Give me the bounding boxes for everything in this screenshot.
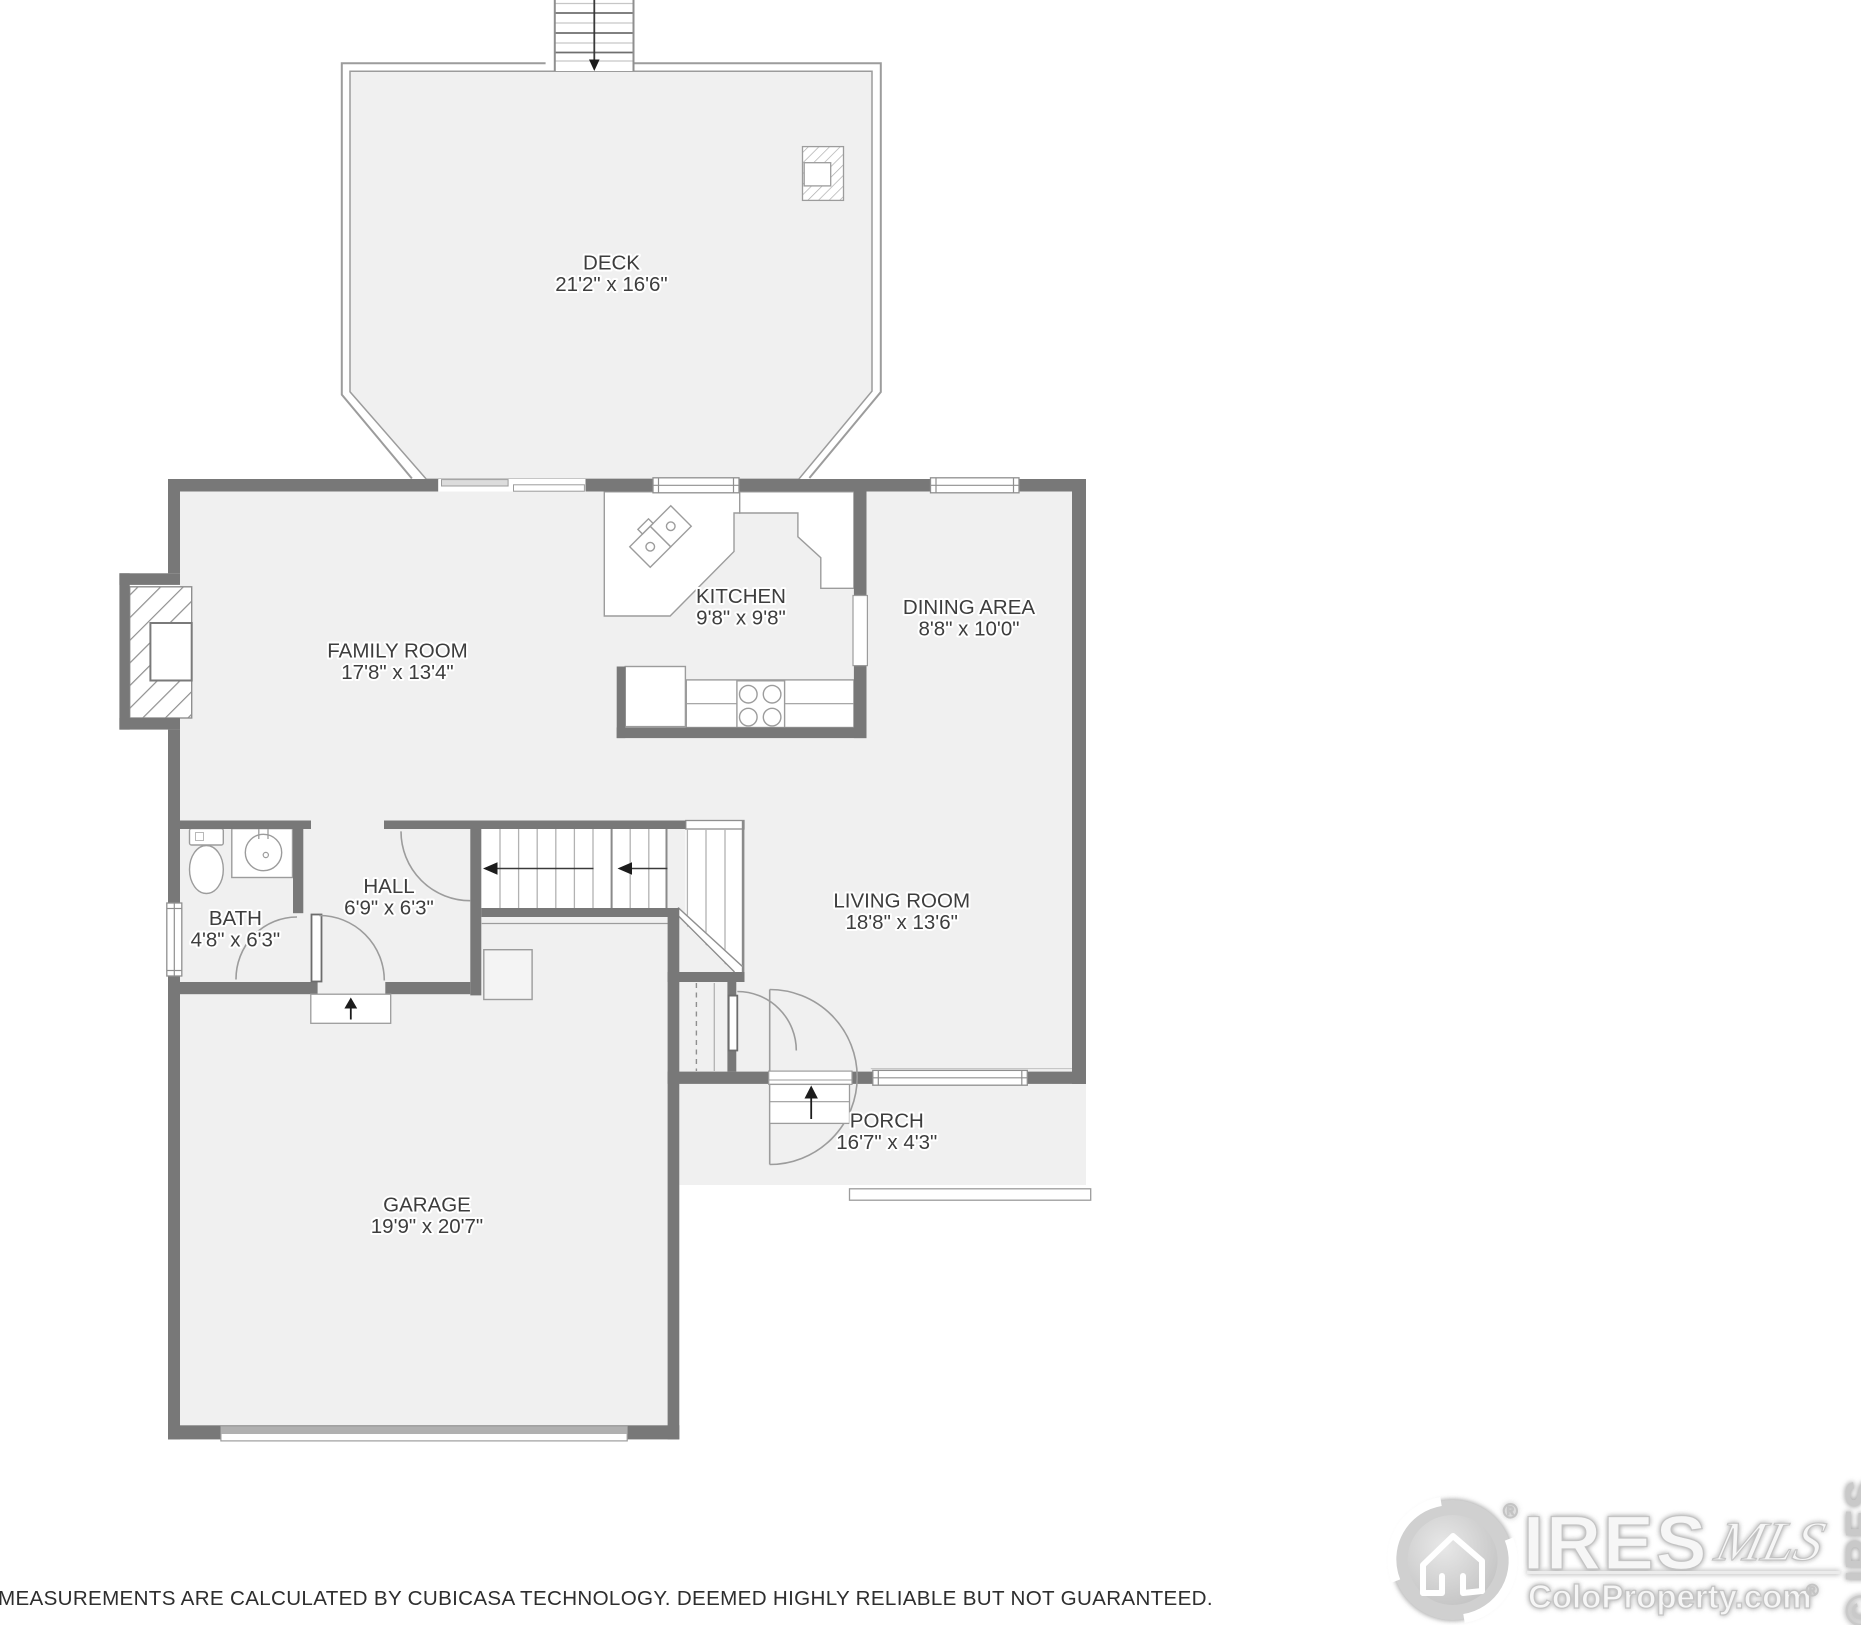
svg-text:18'8" x 13'6": 18'8" x 13'6" [845, 911, 957, 934]
svg-text:BATH: BATH [209, 907, 262, 930]
svg-text:DECK: DECK [583, 252, 640, 275]
svg-text:®: ® [1806, 1581, 1819, 1600]
svg-text:HALL: HALL [363, 875, 414, 898]
svg-text:FAMILY ROOM: FAMILY ROOM [327, 640, 468, 663]
svg-text:KITCHEN: KITCHEN [696, 585, 786, 608]
svg-text:21'2" x 16'6": 21'2" x 16'6" [555, 273, 667, 296]
svg-text:17'8" x 13'4": 17'8" x 13'4" [341, 661, 453, 684]
svg-text:DINING AREA: DINING AREA [903, 596, 1035, 619]
svg-text:8'8" x 10'0": 8'8" x 10'0" [918, 618, 1019, 641]
svg-text:9'8" x 9'8": 9'8" x 9'8" [696, 607, 786, 630]
svg-text:LIVING ROOM: LIVING ROOM [833, 890, 970, 913]
svg-text:ColoProperty.com: ColoProperty.com [1528, 1578, 1812, 1615]
svg-text:16'7" x 4'3": 16'7" x 4'3" [836, 1131, 937, 1154]
svg-text:19'9" x 20'7": 19'9" x 20'7" [371, 1215, 483, 1238]
svg-text:GARAGE: GARAGE [383, 1194, 471, 1217]
svg-text:4'8" x 6'3": 4'8" x 6'3" [191, 929, 281, 952]
svg-text:MEASUREMENTS ARE CALCULATED BY: MEASUREMENTS ARE CALCULATED BY CUBICASA … [0, 1587, 1213, 1610]
svg-text:MLS: MLS [1709, 1511, 1831, 1573]
svg-text:PORCH: PORCH [850, 1110, 924, 1133]
svg-text:6'9" x 6'3": 6'9" x 6'3" [344, 897, 434, 920]
svg-text:®: ® [1503, 1501, 1518, 1523]
svg-text:© IRES: © IRES [1837, 1480, 1861, 1625]
